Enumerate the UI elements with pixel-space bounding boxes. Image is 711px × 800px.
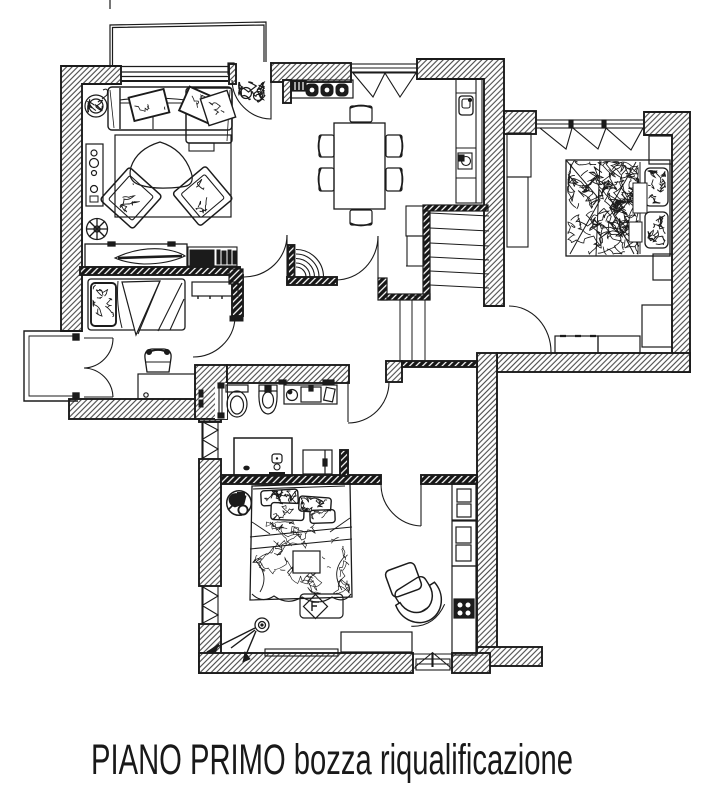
svg-text:PIANO PRIMO bozza riqualificaz: PIANO PRIMO bozza riqualificazione — [91, 736, 573, 784]
